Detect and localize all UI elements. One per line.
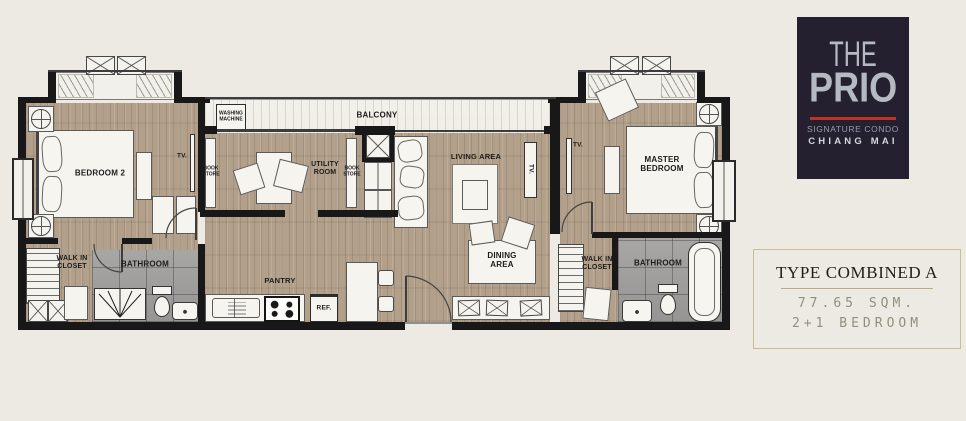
wall-utility-bottom bbox=[318, 210, 398, 217]
label-balcony: BALCONY bbox=[357, 112, 398, 121]
bench-master bbox=[604, 146, 620, 194]
closet-rail-left bbox=[26, 248, 60, 304]
sink-bathroom-left bbox=[172, 302, 198, 320]
toilet-tank bbox=[152, 286, 172, 295]
label-tv-bedroom2: TV. bbox=[177, 152, 187, 159]
label-pantry: PANTRY bbox=[264, 277, 295, 285]
wall-pantry-bath bbox=[198, 244, 205, 330]
planter-box bbox=[610, 56, 639, 75]
island-counter bbox=[346, 262, 378, 322]
bedroom2-door-arc bbox=[166, 208, 196, 238]
dresser-left-closet bbox=[64, 286, 88, 320]
wall-balcony-post bbox=[544, 126, 556, 134]
bar-stool bbox=[378, 296, 394, 312]
wall-utility-bottom bbox=[200, 210, 285, 217]
logo-city: CHIANG MAI bbox=[808, 136, 898, 147]
label-bookstore-left: BOOKSTORE bbox=[202, 166, 219, 177]
curtain-master-right bbox=[661, 74, 695, 98]
wall-closet-bath-right bbox=[612, 238, 618, 290]
master-door-arc bbox=[562, 202, 592, 232]
label-tv-master: TV. bbox=[573, 141, 583, 148]
wall-bottom-right bbox=[452, 322, 730, 330]
closet-rail-right bbox=[558, 244, 584, 312]
wall-bedroom2-hall bbox=[26, 238, 58, 244]
label-bathroom-right: BATHROOM bbox=[634, 260, 682, 269]
cabinet-column-x bbox=[366, 134, 390, 158]
label-walkin-closet-right: WALK INCLOSET bbox=[582, 256, 613, 272]
label-master-bedroom: MASTERBEDROOM bbox=[640, 156, 683, 174]
dresser-right-closet bbox=[582, 287, 611, 322]
unit-type-title: TYPE COMBINED A bbox=[754, 263, 960, 283]
window-niche-left bbox=[12, 158, 34, 220]
utility-window-line bbox=[217, 129, 355, 132]
label-bookstore-right: BOOKSTORE bbox=[343, 166, 360, 177]
tv-board-master bbox=[566, 138, 572, 194]
label-refrigerator: REF. bbox=[317, 304, 332, 311]
bench-pillow bbox=[520, 299, 543, 316]
wall-balcony-post bbox=[205, 126, 217, 134]
window-sill-line bbox=[578, 70, 705, 72]
label-bedroom2: BEDROOM 2 bbox=[75, 170, 125, 179]
wall-wing-post bbox=[174, 70, 182, 103]
sofa-cushion bbox=[399, 164, 426, 189]
sofa-cushion bbox=[397, 195, 425, 222]
coffee-table bbox=[462, 180, 488, 210]
planter-box bbox=[117, 56, 146, 75]
stove bbox=[264, 296, 300, 322]
logo-subtitle: SIGNATURE CONDO bbox=[807, 124, 899, 134]
unit-info-panel: TYPE COMBINED A 77.65 SQM. 2+1 BEDROOM bbox=[753, 249, 961, 349]
label-dining-area: DININGAREA bbox=[487, 252, 516, 270]
logo-red-divider bbox=[810, 117, 896, 120]
wall-balcony-post bbox=[355, 126, 395, 135]
toilet-tank bbox=[658, 284, 678, 293]
sliding-door-line bbox=[395, 130, 544, 132]
tv-board-bedroom2 bbox=[190, 134, 195, 192]
label-washing-machine: WASHINGMACHINE bbox=[219, 111, 243, 122]
wall-bedroom2-hall bbox=[122, 238, 152, 244]
bathtub bbox=[688, 242, 721, 322]
wall-bedroom2-utility bbox=[198, 103, 205, 212]
unit-area: 77.65 SQM. bbox=[754, 296, 960, 311]
sink-bathroom-right bbox=[622, 300, 652, 322]
label-utility-room: UTILITYROOM bbox=[311, 161, 339, 177]
pillow bbox=[41, 176, 63, 213]
wall-living-master bbox=[550, 103, 560, 234]
planter-box bbox=[642, 56, 671, 75]
label-bathroom-left: BATHROOM bbox=[121, 261, 169, 270]
planter-box bbox=[86, 56, 115, 75]
label-tv-living: TV. bbox=[527, 164, 534, 174]
wall-top bbox=[701, 97, 730, 103]
lamp bbox=[31, 109, 51, 129]
kitchen-sink bbox=[212, 298, 260, 318]
wall-wing-post bbox=[48, 70, 56, 103]
lamp bbox=[31, 216, 51, 236]
pillow bbox=[41, 135, 63, 172]
bench-pillow bbox=[458, 300, 481, 317]
bar-stool bbox=[378, 270, 394, 286]
floorplan-sheet: BEDROOM 2 TV. WALK INCLOSET BATHROOM WAS… bbox=[0, 0, 966, 421]
dining-chair bbox=[469, 220, 496, 245]
shower-rays-icon bbox=[95, 289, 145, 319]
window-niche-right bbox=[712, 160, 736, 222]
bench-pillow bbox=[486, 300, 509, 317]
balcony-rail-line bbox=[205, 97, 556, 99]
curtain-bedroom2-left bbox=[58, 74, 94, 98]
prio-logo: THE PRIO SIGNATURE CONDO CHIANG MAI bbox=[797, 17, 909, 179]
title-underline bbox=[781, 288, 933, 289]
curtain-bedroom2-right bbox=[136, 74, 172, 98]
label-living-area: LIVING AREA bbox=[451, 153, 501, 161]
wall-bottom-left bbox=[18, 322, 405, 330]
label-walkin-closet-left: WALK INCLOSET bbox=[57, 255, 88, 271]
window-sill-line bbox=[48, 70, 182, 72]
toilet-bowl bbox=[660, 294, 676, 315]
toilet-bowl bbox=[154, 296, 170, 317]
unit-bedrooms: 2+1 BEDROOM bbox=[754, 316, 960, 331]
wall-wing-post bbox=[697, 70, 705, 103]
logo-prio-text: PRIO bbox=[809, 68, 897, 106]
entry-door-arc bbox=[405, 276, 452, 323]
lamp bbox=[699, 104, 719, 124]
ac-ledge-box bbox=[28, 300, 48, 322]
wall-wing-post bbox=[578, 70, 586, 103]
bench-bedroom2 bbox=[136, 152, 152, 200]
bathroom-left-door-arc bbox=[94, 244, 122, 272]
